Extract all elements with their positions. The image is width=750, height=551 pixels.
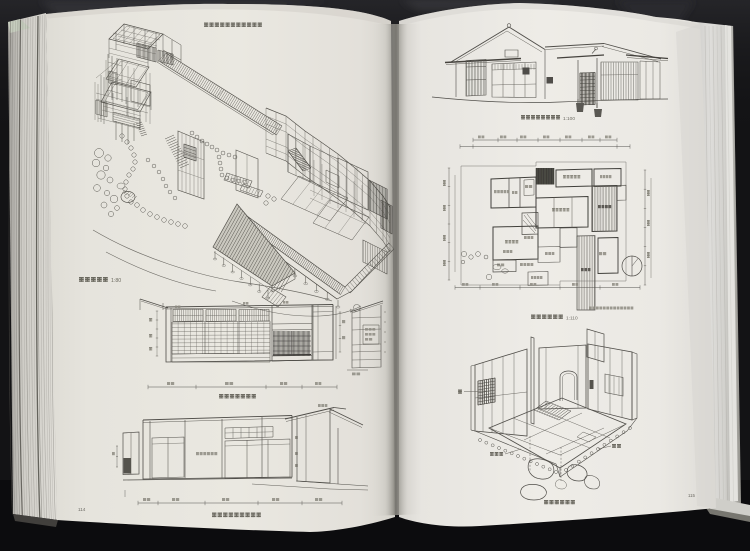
svg-text:114: 114: [78, 507, 86, 512]
svg-text:1:100: 1:100: [563, 116, 575, 122]
svg-text:115: 115: [688, 493, 696, 498]
svg-text:1:80: 1:80: [111, 278, 121, 284]
svg-text:1:110: 1:110: [566, 316, 578, 322]
